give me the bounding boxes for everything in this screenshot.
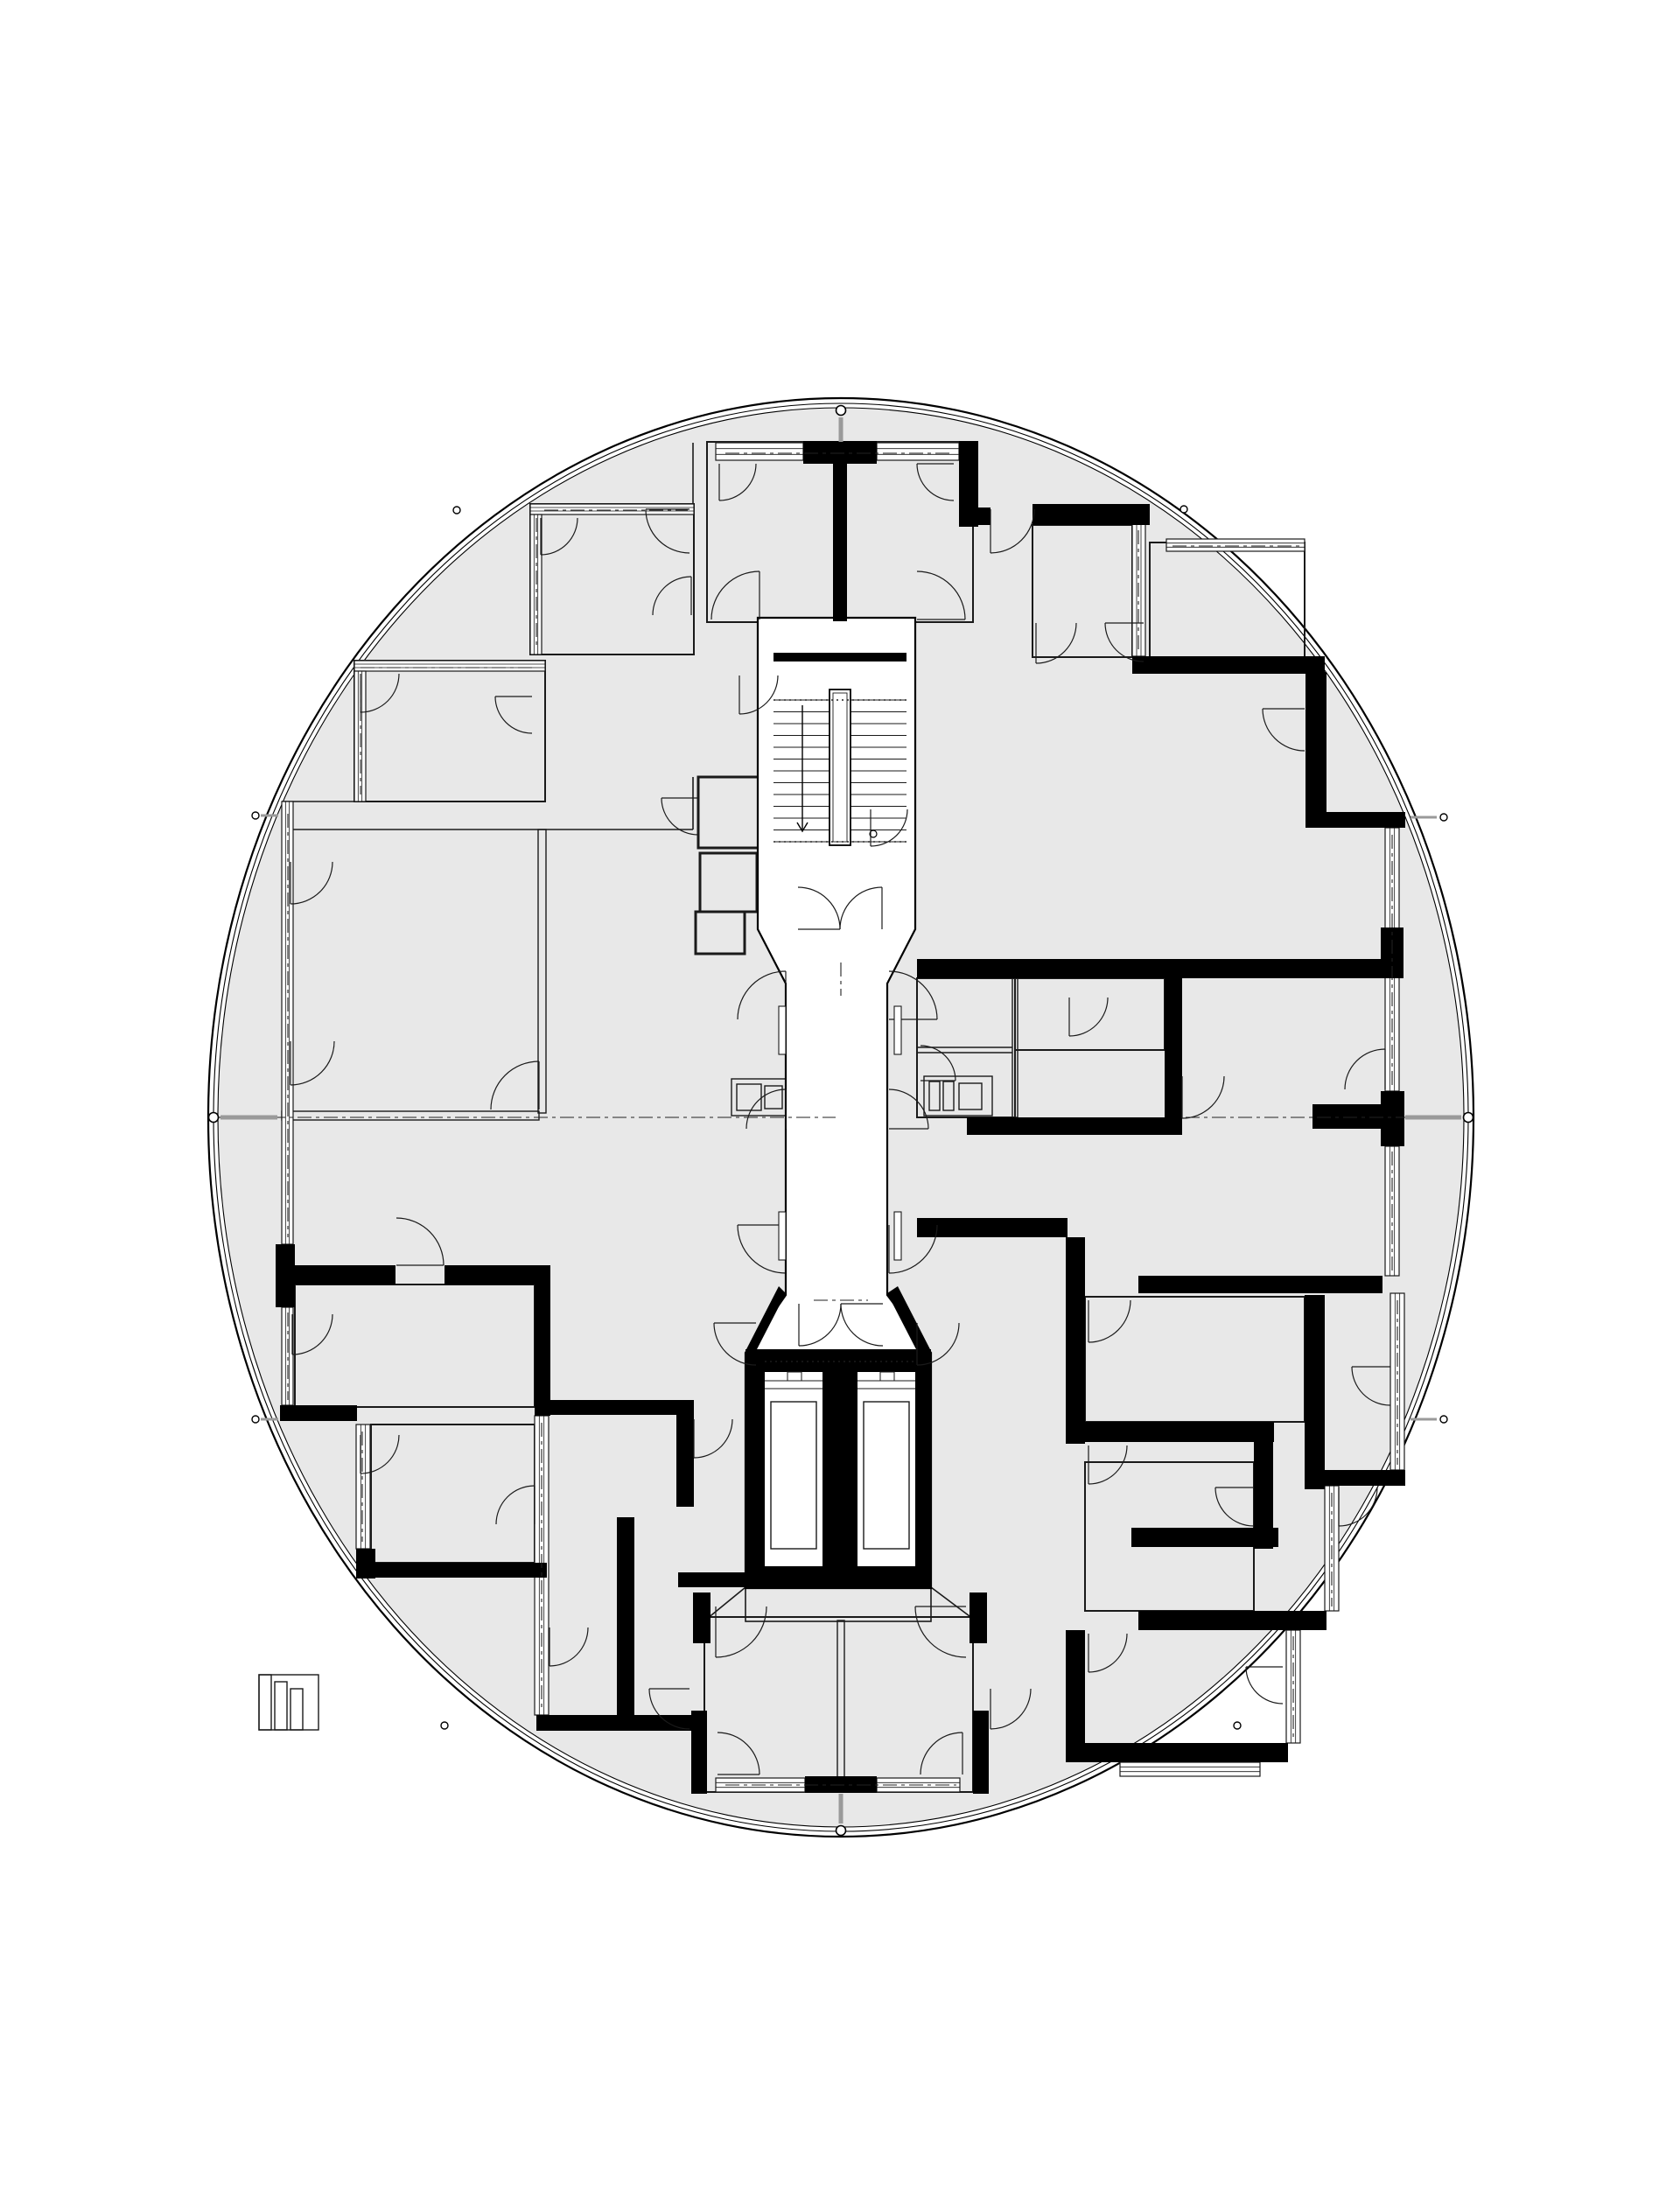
survey-marker — [1440, 1416, 1447, 1423]
survey-marker — [1234, 1722, 1241, 1729]
cardinal-marker — [209, 1113, 219, 1123]
wall-segment — [1305, 1295, 1325, 1489]
wall-segment — [693, 1592, 710, 1643]
wall-segment — [1381, 1091, 1404, 1146]
wall-segment — [536, 1715, 703, 1731]
wall-segment — [1312, 1104, 1384, 1129]
door-leaf — [779, 1212, 786, 1260]
survey-marker — [453, 507, 460, 514]
door-leaf — [894, 1006, 901, 1054]
wall-segment — [1066, 1630, 1085, 1762]
door-arc — [1246, 1667, 1283, 1704]
wall-segment — [444, 1265, 539, 1284]
wall-segment — [917, 1218, 1067, 1237]
survey-marker — [441, 1722, 448, 1729]
survey-marker — [1440, 814, 1447, 821]
wall-segment — [973, 1711, 989, 1794]
window-band — [1166, 539, 1305, 551]
wall-segment — [833, 462, 847, 621]
wall-segment — [276, 1244, 295, 1307]
wall-segment — [1325, 812, 1405, 828]
window-band — [354, 661, 545, 671]
wall-segment — [1165, 974, 1182, 1135]
cardinal-marker — [1464, 1113, 1473, 1123]
wall-segment — [1085, 1743, 1288, 1762]
window-band — [356, 1424, 370, 1549]
wall-segment — [295, 1265, 395, 1284]
room-outline — [259, 1675, 271, 1730]
wall-segment — [1032, 504, 1150, 525]
cardinal-marker — [836, 406, 846, 416]
wall-segment — [1138, 1276, 1382, 1293]
window-band — [1120, 1762, 1260, 1776]
survey-marker — [252, 812, 259, 819]
room-outline — [290, 1689, 303, 1730]
wall-segment — [969, 1592, 987, 1643]
wall-segment — [676, 1400, 694, 1507]
survey-marker — [1180, 506, 1187, 513]
wall-segment — [1131, 1528, 1278, 1547]
door-leaf — [894, 1212, 901, 1260]
wall-segment — [535, 1265, 550, 1416]
wall-segment — [959, 507, 990, 525]
room-outline — [259, 1675, 318, 1730]
wall-segment — [547, 1400, 682, 1415]
wall-segment — [1132, 656, 1325, 674]
wall-segment — [1325, 1470, 1405, 1486]
wall-segment — [691, 1711, 707, 1794]
wall-segment — [917, 959, 1388, 978]
floor-plan-drawing — [0, 0, 1680, 2198]
wall-segment — [1066, 1237, 1085, 1444]
wall-segment — [803, 441, 877, 464]
room-outline — [275, 1682, 287, 1730]
cardinal-marker — [836, 1826, 846, 1836]
window-band — [877, 443, 959, 460]
wall-segment — [617, 1517, 634, 1717]
survey-marker — [252, 1416, 259, 1423]
wall-segment — [280, 1405, 357, 1421]
wall-segment — [356, 1563, 547, 1578]
door-leaf — [779, 1006, 786, 1054]
floor-plan-page — [0, 0, 1680, 2198]
window-band — [716, 443, 803, 460]
elevator-core — [745, 1349, 931, 1587]
wall-segment — [1085, 1422, 1274, 1442]
wall-segment — [1305, 672, 1326, 828]
wall-segment — [1138, 1611, 1326, 1630]
wall-segment — [967, 1117, 1181, 1135]
